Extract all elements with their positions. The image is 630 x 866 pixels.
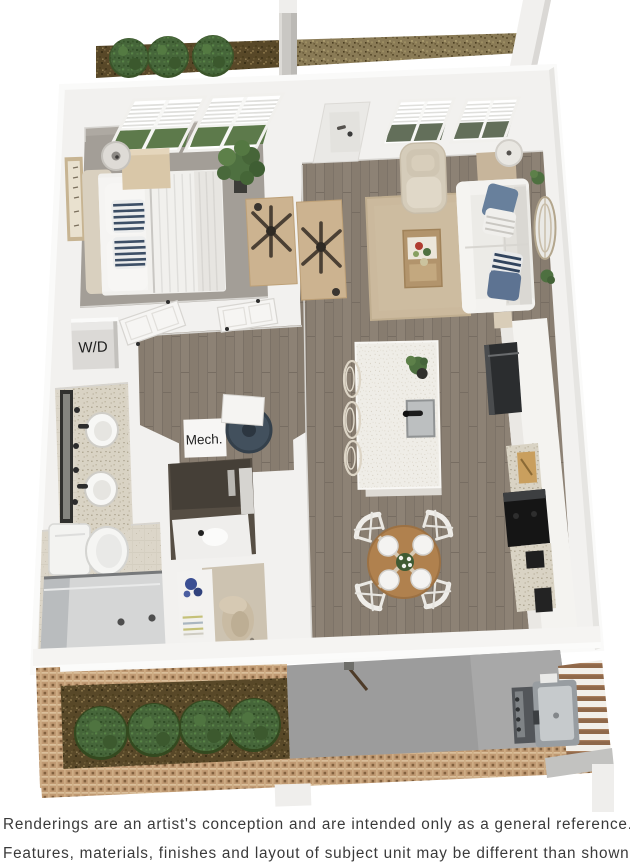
- svg-text:Mech.: Mech.: [185, 431, 222, 447]
- svg-text:Renderings are an artist's con: Renderings are an artist's conception an…: [3, 816, 630, 833]
- svg-text:W/D: W/D: [78, 339, 108, 357]
- svg-text:Features, materials, finishes: Features, materials, finishes and layout…: [3, 845, 630, 862]
